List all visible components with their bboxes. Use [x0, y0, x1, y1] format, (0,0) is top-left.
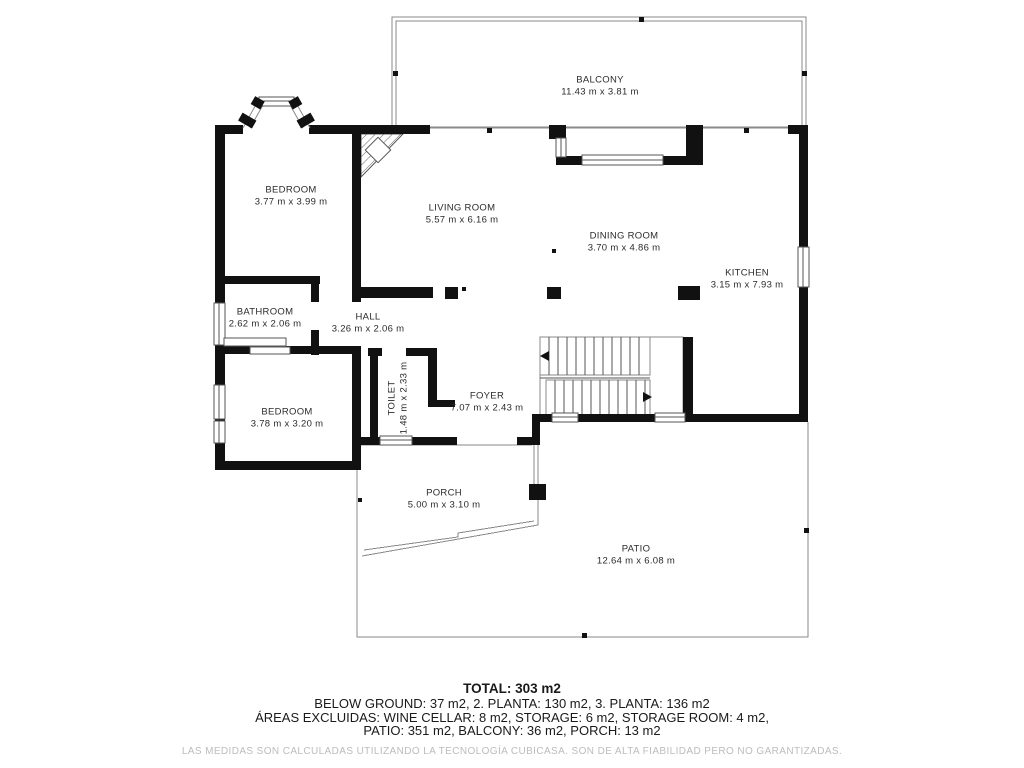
- room-name: BEDROOM: [255, 185, 328, 197]
- summary-areas-line-3: PATIO: 351 m2, BALCONY: 36 m2, PORCH: 13…: [0, 724, 1024, 738]
- balcony-outline: [392, 17, 806, 128]
- bay-window: [238, 96, 315, 128]
- room-dims: 1.48 m x 2.33 m: [398, 362, 410, 435]
- room-dims: 3.15 m x 7.93 m: [711, 279, 784, 291]
- stairs: [540, 337, 683, 415]
- room-dims: 12.64 m x 6.08 m: [597, 555, 675, 567]
- room-name: TOILET: [387, 362, 399, 435]
- summary-total: TOTAL: 303 m2: [0, 682, 1024, 696]
- measurement-disclaimer: LAS MEDIDAS SON CALCULADAS UTILIZANDO LA…: [0, 746, 1024, 757]
- room-label-hall: HALL 3.26 m x 2.06 m: [332, 312, 405, 335]
- room-name: KITCHEN: [711, 268, 784, 280]
- room-name: BATHROOM: [229, 307, 302, 319]
- room-dims: 3.26 m x 2.06 m: [332, 323, 405, 335]
- porch-pillar: [529, 484, 546, 500]
- room-dims: 2.62 m x 2.06 m: [229, 318, 302, 330]
- floorplan-canvas: BALCONY 11.43 m x 3.81 m BEDROOM 3.77 m …: [0, 0, 1024, 768]
- bathroom-fixture-outline: [224, 338, 286, 346]
- room-label-toilet: TOILET 1.48 m x 2.33 m: [387, 362, 410, 435]
- room-name: DINING ROOM: [588, 231, 661, 243]
- room-name: LIVING ROOM: [426, 203, 499, 215]
- room-dims: 5.57 m x 6.16 m: [426, 214, 499, 226]
- room-label-dining-room: DINING ROOM 3.70 m x 4.86 m: [588, 231, 661, 254]
- room-label-balcony: BALCONY 11.43 m x 3.81 m: [561, 75, 639, 98]
- room-name: BALCONY: [561, 75, 639, 87]
- room-label-living-room: LIVING ROOM 5.57 m x 6.16 m: [426, 203, 499, 226]
- room-label-bedroom-1: BEDROOM 3.77 m x 3.99 m: [255, 185, 328, 208]
- room-dims: 3.70 m x 4.86 m: [588, 242, 661, 254]
- room-name: PORCH: [408, 488, 481, 500]
- walls: [215, 125, 808, 500]
- summary-areas-line-1: BELOW GROUND: 37 m2, 2. PLANTA: 130 m2, …: [0, 697, 1024, 711]
- stairs-down-arrow: [643, 392, 652, 402]
- room-label-bathroom: BATHROOM 2.62 m x 2.06 m: [229, 307, 302, 330]
- patio-outline: [357, 422, 808, 637]
- room-label-foyer: FOYER 7.07 m x 2.43 m: [451, 391, 524, 414]
- room-dims: 3.77 m x 3.99 m: [255, 196, 328, 208]
- room-name: HALL: [332, 312, 405, 324]
- stairs-up-arrow: [540, 351, 549, 361]
- room-name: PATIO: [597, 544, 675, 556]
- room-dims: 5.00 m x 3.10 m: [408, 499, 481, 511]
- room-dims: 3.78 m x 3.20 m: [251, 418, 324, 430]
- room-label-bedroom-2: BEDROOM 3.78 m x 3.20 m: [251, 407, 324, 430]
- room-label-porch: PORCH 5.00 m x 3.10 m: [408, 488, 481, 511]
- room-name: BEDROOM: [251, 407, 324, 419]
- fireplace-symbol: [361, 134, 403, 177]
- floorplan-drawing: [0, 0, 1024, 768]
- room-name: FOYER: [451, 391, 524, 403]
- room-label-kitchen: KITCHEN 3.15 m x 7.93 m: [711, 268, 784, 291]
- room-dims: 11.43 m x 3.81 m: [561, 86, 639, 98]
- room-label-patio: PATIO 12.64 m x 6.08 m: [597, 544, 675, 567]
- room-dims: 7.07 m x 2.43 m: [451, 402, 524, 414]
